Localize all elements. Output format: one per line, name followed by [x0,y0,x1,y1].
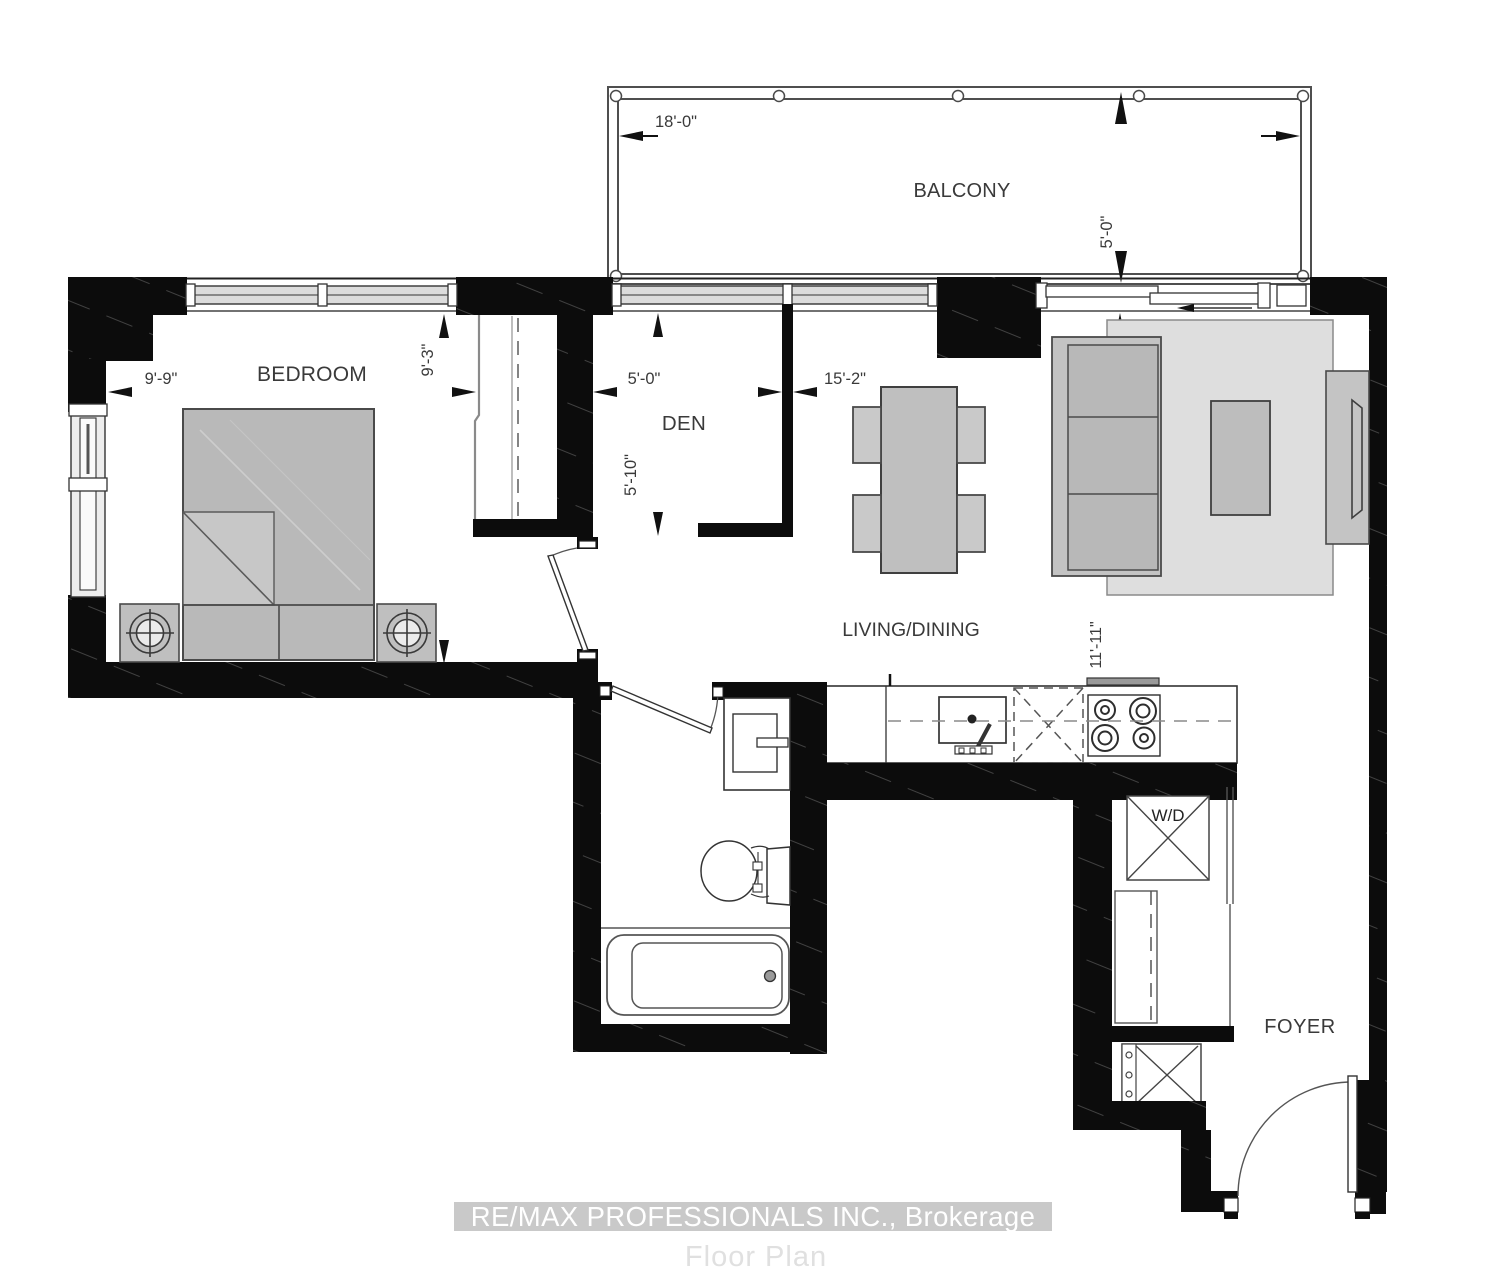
svg-text:18'-0": 18'-0" [655,113,697,131]
svg-text:5'-0": 5'-0" [1098,215,1116,248]
svg-text:LIVING/DINING: LIVING/DINING [842,619,980,641]
svg-text:Floor Plan: Floor Plan [685,1241,827,1273]
svg-text:W/D: W/D [1151,806,1184,825]
svg-text:FOYER: FOYER [1264,1016,1335,1038]
svg-text:9'-3": 9'-3" [419,343,437,376]
svg-text:5'-0": 5'-0" [628,370,661,388]
svg-text:15'-2": 15'-2" [824,370,866,388]
svg-text:BALCONY: BALCONY [914,180,1011,202]
svg-text:RE/MAX PROFESSIONALS INC., Bro: RE/MAX PROFESSIONALS INC., Brokerage [471,1201,1036,1232]
svg-text:11'-11": 11'-11" [1088,621,1105,668]
svg-text:5'-10": 5'-10" [622,454,640,496]
svg-text:9'-9": 9'-9" [145,370,178,388]
svg-text:BEDROOM: BEDROOM [257,363,367,386]
svg-text:DEN: DEN [662,412,706,435]
